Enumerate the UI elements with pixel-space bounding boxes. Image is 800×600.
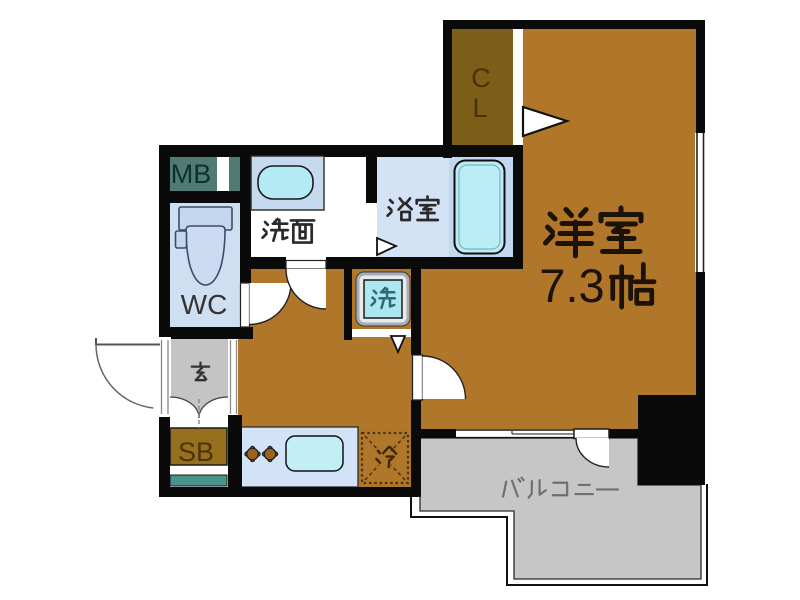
svg-text:SB: SB — [178, 437, 214, 467]
svg-text:L: L — [472, 93, 487, 123]
svg-text:7.3: 7.3 — [539, 259, 604, 312]
svg-text:C: C — [471, 63, 491, 93]
svg-text:MB: MB — [171, 159, 212, 189]
svg-text:WC: WC — [181, 289, 228, 320]
